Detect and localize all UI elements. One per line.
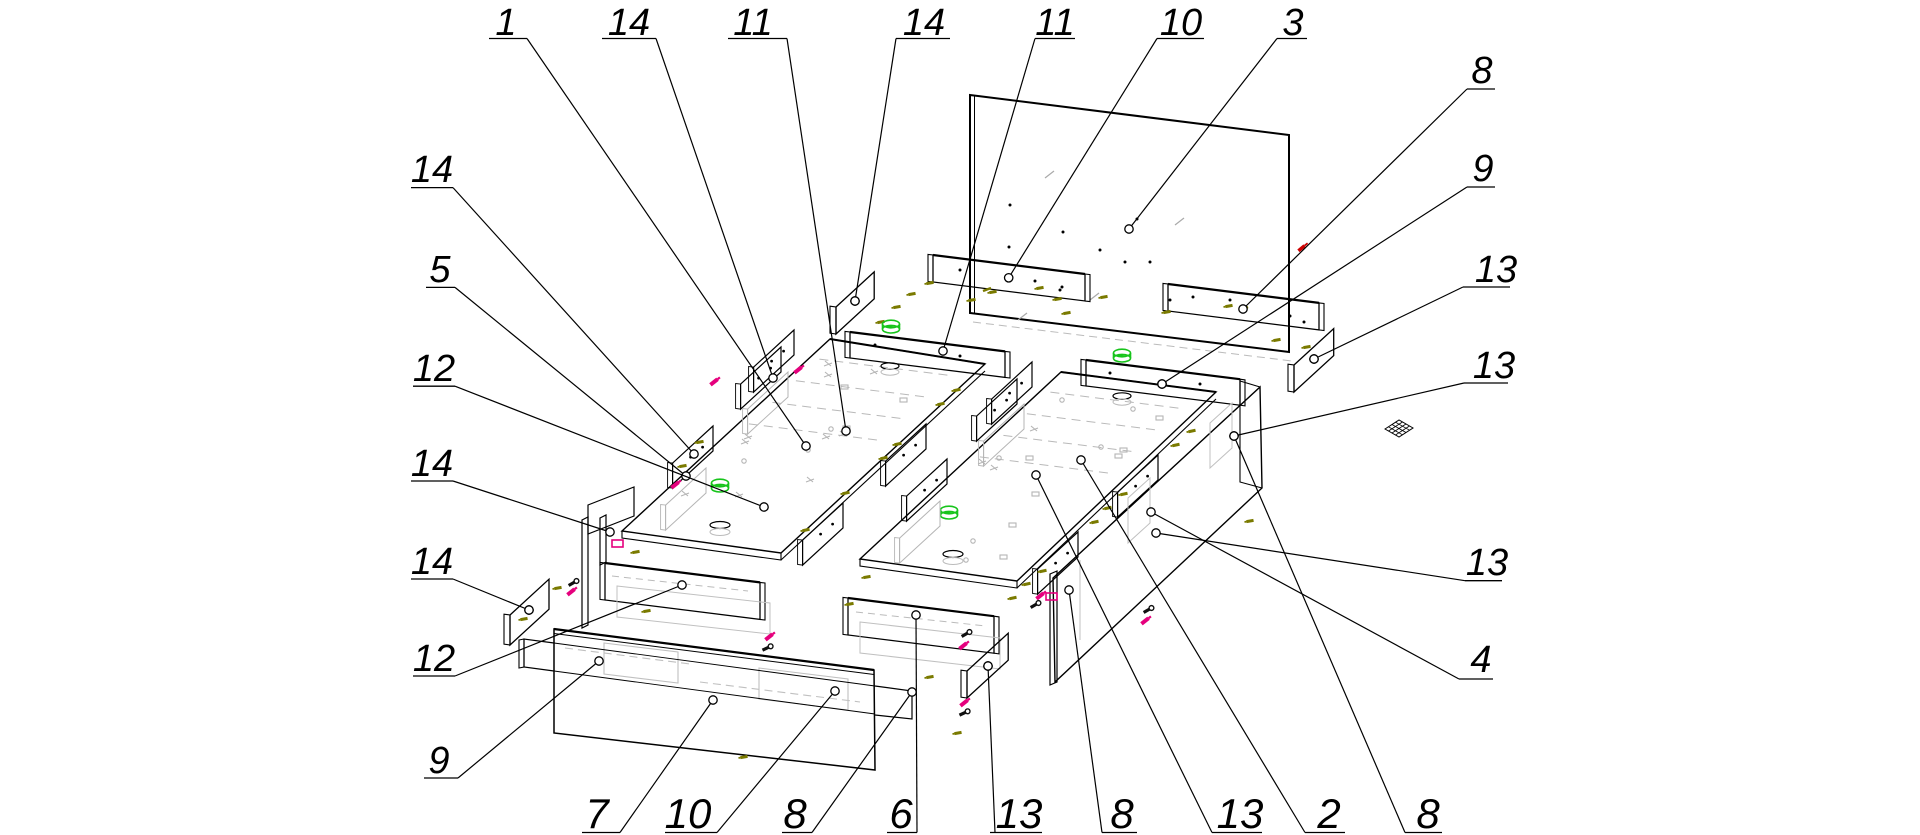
svg-text:8: 8 xyxy=(1471,50,1492,92)
svg-text:3: 3 xyxy=(1282,2,1303,44)
svg-text:7: 7 xyxy=(585,790,610,835)
svg-text:11: 11 xyxy=(1035,2,1074,44)
svg-text:14: 14 xyxy=(903,2,945,44)
svg-text:9: 9 xyxy=(1472,148,1493,190)
svg-text:12: 12 xyxy=(413,348,455,390)
svg-text:13: 13 xyxy=(1473,345,1515,387)
svg-text:8: 8 xyxy=(1110,790,1134,835)
svg-text:14: 14 xyxy=(411,443,453,485)
svg-text:4: 4 xyxy=(1470,639,1491,681)
svg-text:13: 13 xyxy=(1217,790,1264,835)
svg-text:11: 11 xyxy=(733,2,772,44)
svg-text:14: 14 xyxy=(411,541,453,583)
svg-text:1: 1 xyxy=(495,2,516,44)
svg-text:14: 14 xyxy=(411,149,453,191)
svg-text:14: 14 xyxy=(608,2,650,44)
svg-text:6: 6 xyxy=(889,790,913,835)
svg-text:10: 10 xyxy=(665,790,712,835)
svg-text:13: 13 xyxy=(1475,249,1517,291)
svg-text:9: 9 xyxy=(428,740,449,782)
svg-text:13: 13 xyxy=(996,790,1043,835)
svg-text:13: 13 xyxy=(1466,542,1508,584)
svg-text:2: 2 xyxy=(1316,790,1340,835)
svg-text:10: 10 xyxy=(1160,2,1202,44)
svg-text:8: 8 xyxy=(783,790,807,835)
svg-text:8: 8 xyxy=(1416,790,1440,835)
svg-text:12: 12 xyxy=(413,638,455,680)
svg-text:5: 5 xyxy=(429,249,451,291)
